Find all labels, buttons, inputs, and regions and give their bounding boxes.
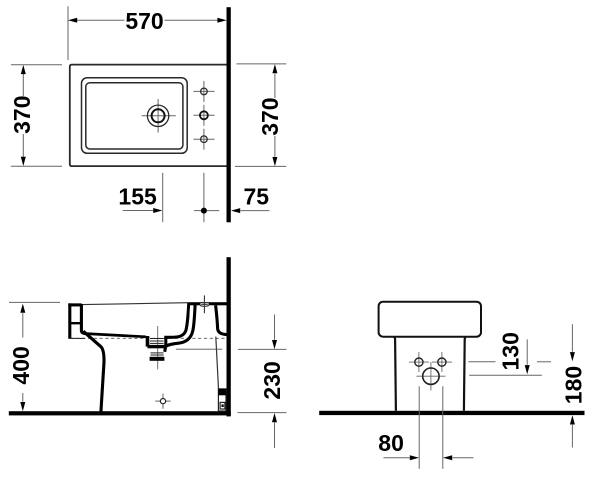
svg-text:80: 80 — [378, 430, 404, 456]
svg-text:400: 400 — [8, 346, 34, 384]
svg-text:130: 130 — [498, 332, 524, 370]
svg-text:370: 370 — [257, 97, 283, 135]
svg-text:570: 570 — [125, 8, 163, 34]
svg-text:75: 75 — [244, 184, 270, 210]
svg-text:370: 370 — [9, 96, 35, 134]
svg-text:180: 180 — [560, 366, 586, 404]
svg-text:155: 155 — [118, 184, 157, 210]
svg-text:230: 230 — [259, 361, 285, 399]
